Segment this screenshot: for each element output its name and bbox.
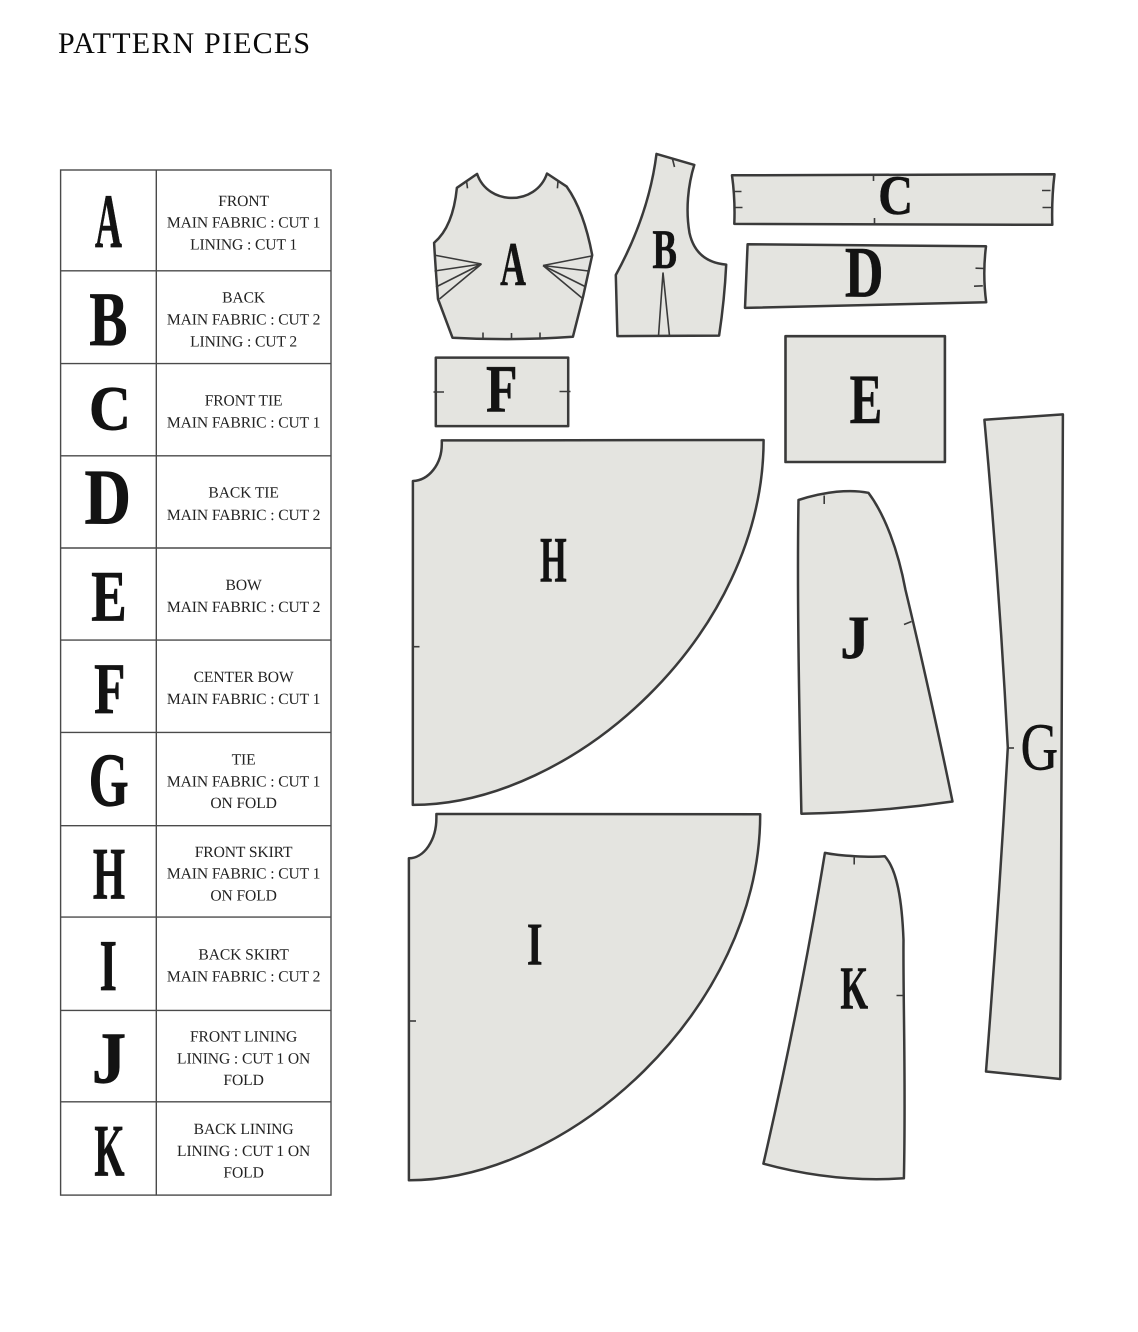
- svg-text:K: K: [840, 956, 868, 1023]
- svg-text:A: A: [500, 230, 526, 299]
- svg-text:BACK TIE: BACK TIE: [208, 485, 278, 502]
- svg-text:B: B: [652, 219, 677, 281]
- svg-text:MAIN FABRIC : CUT 2: MAIN FABRIC : CUT 2: [167, 599, 320, 616]
- svg-text:J: J: [92, 1017, 126, 1098]
- svg-text:TIE: TIE: [232, 752, 256, 769]
- svg-text:MAIN FABRIC : CUT 1: MAIN FABRIC : CUT 1: [167, 215, 320, 232]
- svg-text:ON FOLD: ON FOLD: [210, 795, 276, 812]
- svg-text:D: D: [845, 231, 884, 312]
- svg-text:LINING : CUT 2: LINING : CUT 2: [190, 333, 297, 350]
- svg-text:FRONT SKIRT: FRONT SKIRT: [195, 844, 293, 861]
- svg-text:D: D: [84, 454, 130, 541]
- svg-text:F: F: [486, 352, 518, 427]
- svg-text:MAIN FABRIC : CUT 1: MAIN FABRIC : CUT 1: [167, 415, 320, 432]
- svg-text:A: A: [95, 179, 122, 264]
- svg-text:MAIN FABRIC : CUT 2: MAIN FABRIC : CUT 2: [167, 312, 320, 329]
- svg-text:LINING : CUT 1 ON: LINING : CUT 1 ON: [177, 1143, 310, 1160]
- svg-text:FOLD: FOLD: [223, 1072, 263, 1089]
- svg-text:I: I: [100, 925, 117, 1006]
- svg-text:ON FOLD: ON FOLD: [210, 888, 276, 905]
- svg-text:BACK LINING: BACK LINING: [194, 1121, 294, 1138]
- svg-text:BOW: BOW: [226, 577, 262, 594]
- svg-text:MAIN FABRIC : CUT 2: MAIN FABRIC : CUT 2: [167, 969, 320, 986]
- svg-text:H: H: [93, 834, 125, 916]
- svg-text:LINING : CUT 1 ON: LINING : CUT 1 ON: [177, 1050, 310, 1067]
- svg-text:CENTER BOW: CENTER BOW: [194, 669, 294, 686]
- svg-text:FRONT LINING: FRONT LINING: [190, 1029, 297, 1046]
- svg-text:BACK SKIRT: BACK SKIRT: [198, 947, 289, 964]
- svg-text:FRONT TIE: FRONT TIE: [205, 392, 283, 409]
- svg-text:MAIN FABRIC : CUT 1: MAIN FABRIC : CUT 1: [167, 866, 320, 883]
- svg-text:C: C: [89, 373, 131, 443]
- svg-text:MAIN FABRIC : CUT 1: MAIN FABRIC : CUT 1: [167, 773, 320, 790]
- svg-text:F: F: [94, 648, 125, 729]
- svg-text:C: C: [878, 165, 913, 227]
- svg-text:B: B: [89, 276, 127, 362]
- svg-text:MAIN FABRIC : CUT 2: MAIN FABRIC : CUT 2: [167, 507, 320, 524]
- svg-text:LINING : CUT 1: LINING : CUT 1: [190, 237, 297, 254]
- svg-text:E: E: [850, 361, 883, 439]
- svg-text:G: G: [89, 739, 129, 823]
- svg-text:J: J: [840, 604, 869, 672]
- svg-text:FOLD: FOLD: [223, 1165, 263, 1182]
- svg-text:FRONT: FRONT: [218, 193, 269, 210]
- svg-text:E: E: [91, 557, 126, 637]
- svg-text:PATTERN PIECES: PATTERN PIECES: [58, 27, 311, 60]
- svg-text:H: H: [540, 525, 567, 597]
- svg-text:BACK: BACK: [222, 290, 266, 307]
- svg-text:MAIN FABRIC : CUT 1: MAIN FABRIC : CUT 1: [167, 691, 320, 708]
- svg-text:K: K: [94, 1110, 124, 1192]
- svg-text:I: I: [527, 912, 543, 979]
- svg-text:G: G: [1021, 709, 1058, 784]
